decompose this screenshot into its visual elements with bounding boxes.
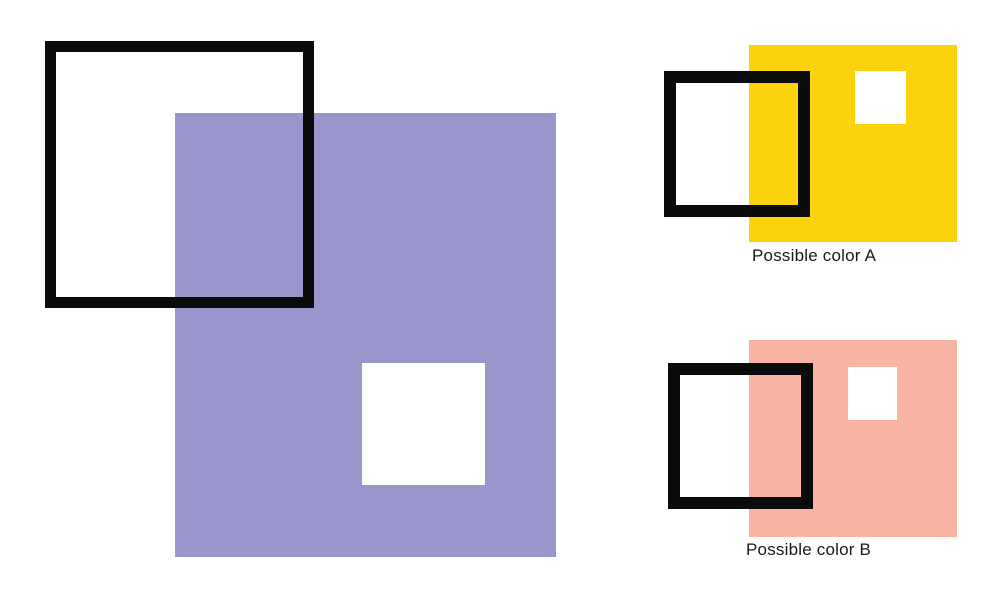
option-a-white-cutout-square: [855, 71, 906, 124]
figure-canvas: Possible color A Possible color B: [0, 0, 1000, 598]
option-a-label: Possible color A: [752, 247, 876, 266]
option-a-black-outline-square: [664, 71, 810, 217]
option-b-white-cutout-square: [848, 367, 897, 420]
target-white-cutout-square: [362, 363, 485, 485]
target-black-outline-square: [45, 41, 314, 308]
option-b-black-outline-square: [668, 363, 813, 509]
option-b-label: Possible color B: [746, 541, 871, 560]
